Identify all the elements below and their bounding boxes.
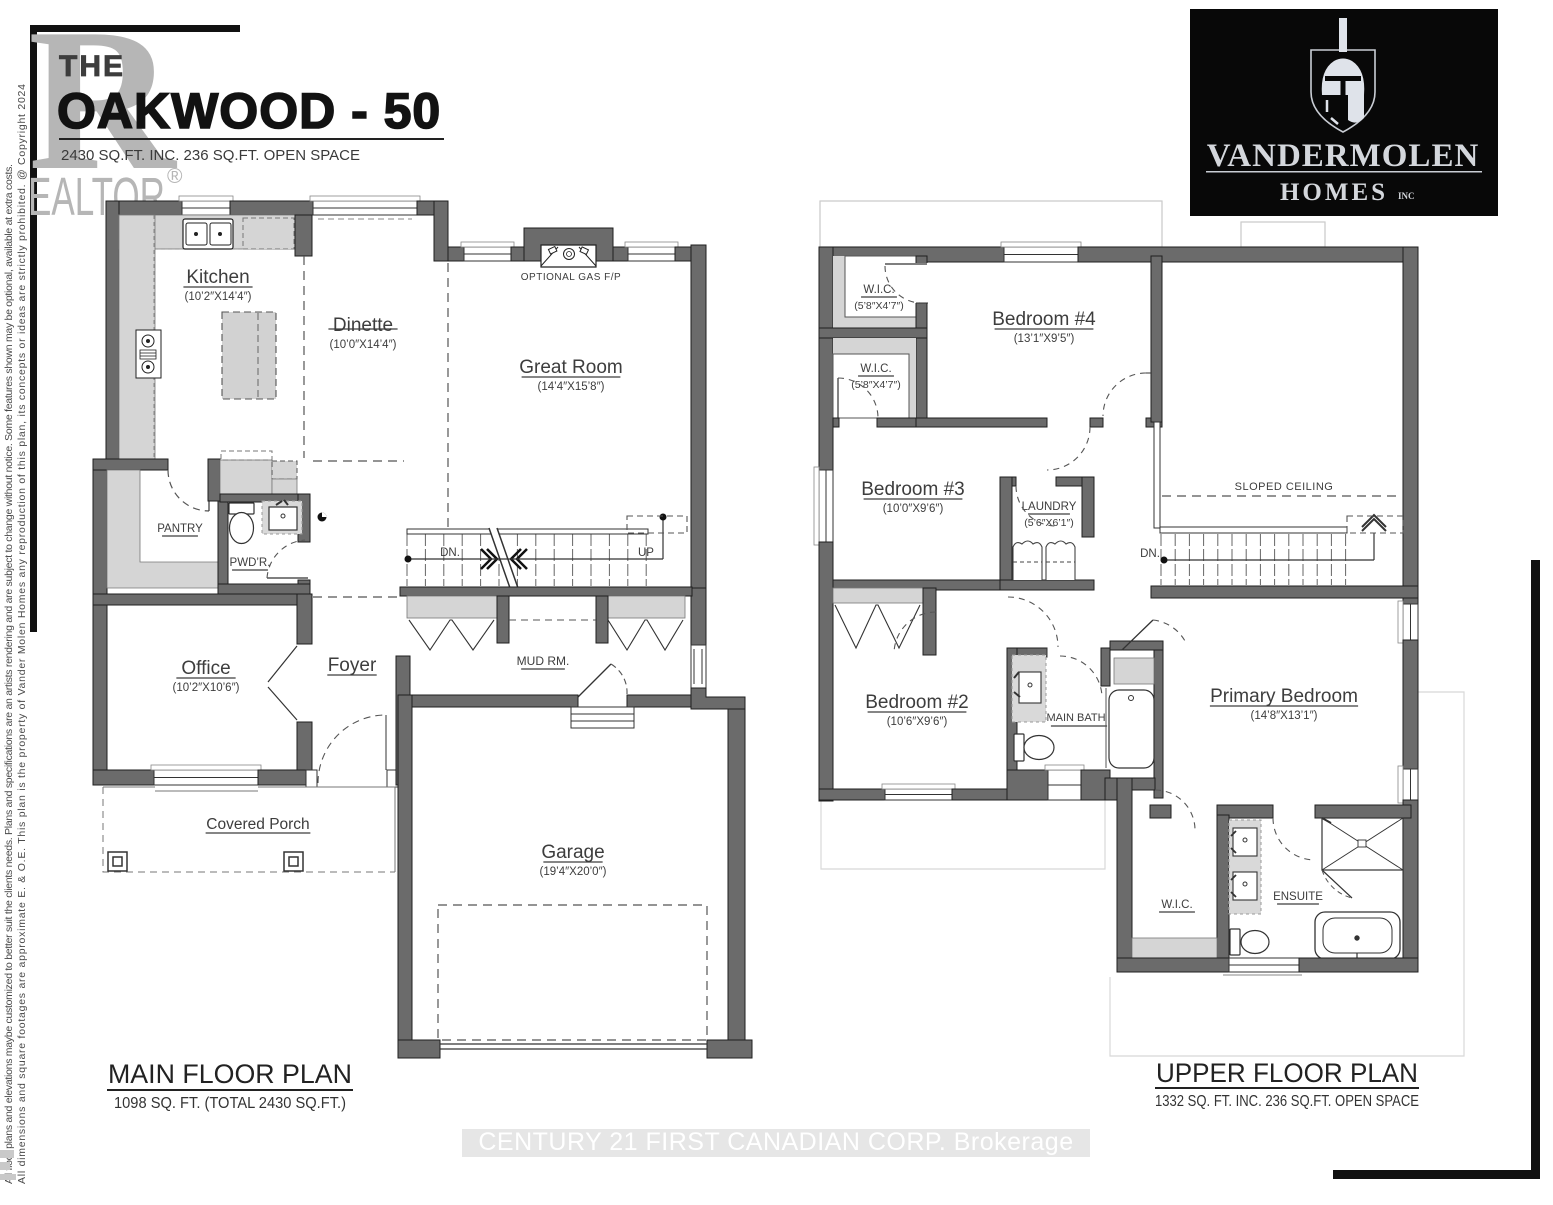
svg-text:Covered Porch: Covered Porch [206,816,309,833]
svg-text:CENTURY 21 FIRST CANADIAN CORP: CENTURY 21 FIRST CANADIAN CORP. Brokerag… [478,1128,1073,1156]
svg-text:(5’6″X6’1″): (5’6″X6’1″) [1024,517,1073,529]
svg-text:Dinette: Dinette [333,315,393,336]
svg-text:Garage: Garage [541,842,604,863]
svg-text:(10’2″X14’4″): (10’2″X14’4″) [185,291,252,303]
svg-text:1098 SQ. FT. (TOTAL 2430 SQ.FT: 1098 SQ. FT. (TOTAL 2430 SQ.FT.) [114,1095,346,1112]
svg-text:LAUNDRY: LAUNDRY [1022,501,1077,513]
svg-text:OAKWOOD - 50: OAKWOOD - 50 [57,83,441,139]
svg-text:2430 SQ.FT. INC. 236 SQ.FT. OP: 2430 SQ.FT. INC. 236 SQ.FT. OPEN SPACE [61,147,360,164]
svg-text:DN.: DN. [1140,548,1160,560]
svg-text:Bedroom #3: Bedroom #3 [861,479,965,500]
svg-text:HOMES: HOMES [1280,179,1388,206]
svg-text:(10’2″X10’6″): (10’2″X10’6″) [173,682,240,694]
svg-text:Kitchen: Kitchen [186,267,249,288]
svg-text:MUD RM.: MUD RM. [517,654,570,668]
svg-text:All dimensions and square foot: All dimensions and square footages are a… [16,84,28,1184]
svg-text:1332 SQ. FT. INC. 236 SQ.FT. O: 1332 SQ. FT. INC. 236 SQ.FT. OPEN SPACE [1155,1093,1419,1110]
svg-text:UPPER FLOOR PLAN: UPPER FLOOR PLAN [1156,1058,1418,1088]
svg-text:Office: Office [181,658,230,679]
svg-text:W.I.C.: W.I.C. [860,363,891,375]
svg-text:ENSUITE: ENSUITE [1273,891,1323,903]
svg-text:INC: INC [1398,191,1415,201]
svg-text:(13’1″X9’5″): (13’1″X9’5″) [1014,333,1075,345]
svg-text:(14’8″X13’1″): (14’8″X13’1″) [1251,710,1318,722]
svg-text:Great Room: Great Room [519,357,622,378]
svg-text:MAIN FLOOR PLAN: MAIN FLOOR PLAN [108,1059,352,1089]
svg-text:OPTIONAL GAS F/P: OPTIONAL GAS F/P [521,272,621,283]
svg-text:®: ® [167,165,183,188]
svg-text:W.I.C.: W.I.C. [863,284,894,296]
svg-text:UP: UP [638,547,654,559]
svg-text:(5’8″X4’7″): (5’8″X4’7″) [854,300,903,312]
svg-text:(14’4″X15’8″): (14’4″X15’8″) [538,381,605,393]
svg-text:All floor plans and elevations: All floor plans and elevations maybe cus… [3,164,15,1184]
svg-text:PWD’R.: PWD’R. [230,557,271,569]
svg-text:MAIN BATH: MAIN BATH [1046,712,1105,724]
svg-text:VANDERMOLEN: VANDERMOLEN [1207,138,1480,174]
svg-text:Primary Bedroom: Primary Bedroom [1210,686,1358,707]
svg-text:(10’0″X14’4″): (10’0″X14’4″) [330,339,397,351]
svg-text:(5’8″X4’7″): (5’8″X4’7″) [851,379,900,391]
svg-text:Bedroom #4: Bedroom #4 [992,309,1096,330]
svg-text:DN.: DN. [440,547,460,559]
svg-text:W.I.C.: W.I.C. [1161,899,1192,911]
svg-text:(19’4″X20’0″): (19’4″X20’0″) [540,866,607,878]
svg-text:SLOPED CEILING: SLOPED CEILING [1235,481,1334,493]
svg-text:(10’0″X9’6″): (10’0″X9’6″) [883,503,944,515]
svg-text:PANTRY: PANTRY [157,523,203,535]
svg-text:Foyer: Foyer [328,655,377,676]
svg-text:Bedroom #2: Bedroom #2 [865,692,969,713]
svg-text:(10’6″X9’6″): (10’6″X9’6″) [887,716,948,728]
svg-text:THE: THE [59,50,125,83]
